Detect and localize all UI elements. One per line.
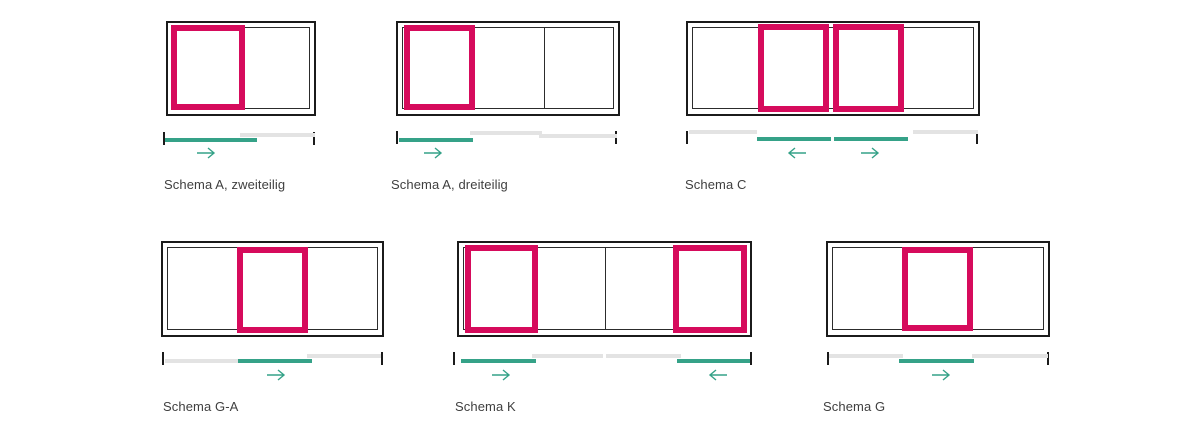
sliding-panel: [171, 25, 245, 110]
sliding-panel: [833, 24, 904, 112]
arrow-right-icon: [196, 147, 216, 159]
schema-label: Schema G-A: [163, 400, 238, 414]
track-fixed-segment: [532, 354, 603, 358]
sliding-panel: [758, 24, 829, 112]
schema-diagrams: Schema A, zweiteilig Schema A, dreiteili…: [0, 0, 1200, 429]
door-frame: [826, 241, 1050, 337]
track-sliding-segment: [834, 137, 908, 141]
track-end-tick-right: [381, 352, 383, 365]
track-end-tick-left: [686, 131, 688, 144]
sliding-panel: [673, 245, 747, 333]
track-fixed-segment: [539, 134, 617, 138]
track-fixed-segment: [470, 131, 542, 135]
track-sliding-segment: [399, 138, 473, 142]
door-frame: [396, 21, 620, 116]
track-end-tick-right: [750, 352, 752, 365]
schema-label: Schema A, zweiteilig: [164, 178, 285, 192]
track-fixed-segment: [165, 359, 240, 363]
arrow-right-icon: [423, 147, 443, 159]
sliding-panel: [902, 247, 973, 331]
track-fixed-segment: [606, 354, 681, 358]
track-end-tick-left: [396, 131, 398, 144]
door-frame: [161, 241, 384, 337]
track-fixed-segment: [307, 354, 381, 358]
track-sliding-segment: [238, 359, 312, 363]
schema-label: Schema C: [685, 178, 747, 192]
track-end-tick-left: [453, 352, 455, 365]
track-sliding-segment: [165, 138, 257, 142]
door-frame: [457, 241, 752, 337]
track-fixed-segment: [240, 133, 315, 137]
arrow-right-icon: [860, 147, 880, 159]
arrow-left-icon: [787, 147, 807, 159]
track-end-tick-left: [162, 352, 164, 365]
sliding-panel: [237, 247, 308, 333]
schema-label: Schema K: [455, 400, 516, 414]
arrow-right-icon: [266, 369, 286, 381]
track-sliding-segment: [899, 359, 974, 363]
arrow-right-icon: [491, 369, 511, 381]
schema-label: Schema A, dreiteilig: [391, 178, 508, 192]
door-frame: [686, 21, 980, 116]
arrow-left-icon: [708, 369, 728, 381]
panel-divider: [605, 247, 606, 330]
panel-divider: [544, 27, 545, 109]
track-fixed-segment: [972, 354, 1048, 358]
track-sliding-segment: [757, 137, 831, 141]
schema-label: Schema G: [823, 400, 885, 414]
track-sliding-segment: [677, 359, 750, 363]
arrow-right-icon: [931, 369, 951, 381]
track-fixed-segment: [829, 354, 903, 358]
track-sliding-segment: [461, 359, 536, 363]
sliding-panel: [404, 25, 475, 110]
track-fixed-segment: [913, 130, 978, 134]
door-frame: [166, 21, 316, 116]
track-fixed-segment: [689, 130, 757, 134]
sliding-panel: [465, 245, 538, 333]
